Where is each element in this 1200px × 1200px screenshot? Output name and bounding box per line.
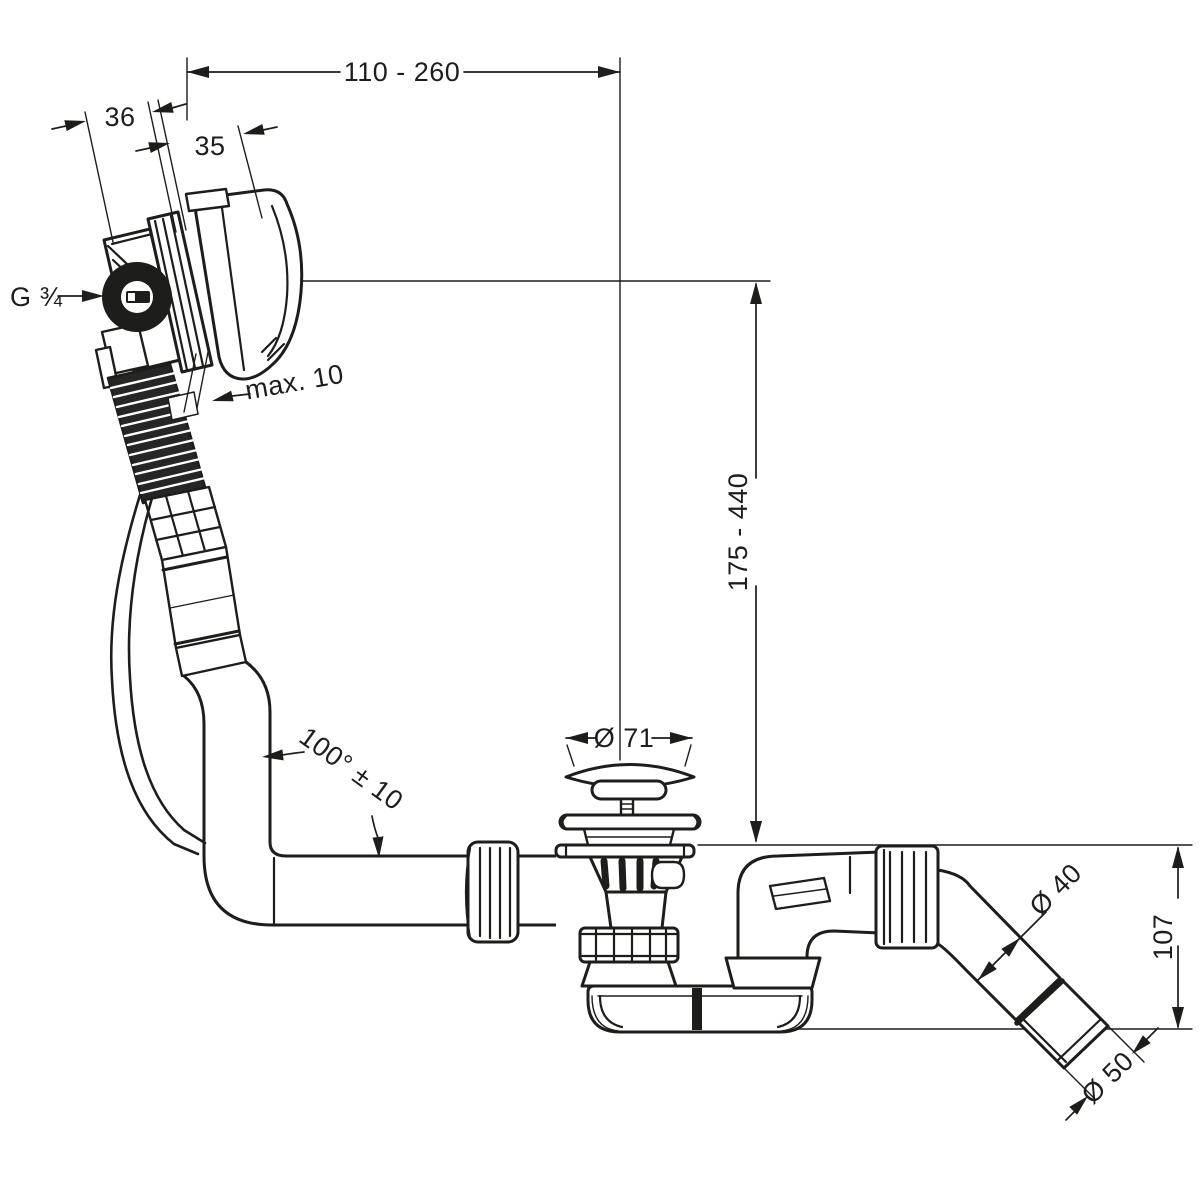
dim-height-range: 175 - 440 <box>723 282 762 843</box>
strainer-flange <box>556 845 694 857</box>
rosette-tab <box>186 189 229 211</box>
hose-union-nut <box>466 842 518 942</box>
dim-pipe-diameter-label: Ø 40 <box>1024 858 1088 922</box>
waste-body <box>556 845 696 986</box>
dim-plug-diameter: Ø 71 <box>566 723 692 766</box>
dim-outlet-height-label: 107 <box>1148 914 1178 961</box>
bath-waste-overflow-drawing: 110 - 260 36 35 G ¾ max. 10 175 - 4 <box>0 0 1200 1200</box>
rosette-housing <box>196 190 302 379</box>
bowl-seam <box>692 988 702 1030</box>
waste-hub <box>582 962 676 986</box>
dim-width-range: 110 - 260 <box>187 57 620 87</box>
thread-label: G ¾ <box>10 282 63 312</box>
thread-connection-ring <box>102 262 172 332</box>
dim-rosette-depth-label: 35 <box>194 131 225 161</box>
dim-thread: G ¾ <box>10 282 104 312</box>
outlet-union-nut <box>876 846 938 948</box>
technical-drawing-page: 110 - 260 36 35 G ¾ max. 10 175 - 4 <box>0 0 1200 1200</box>
corrugated-section <box>108 364 205 503</box>
dim-width-range-label: 110 - 260 <box>344 57 461 87</box>
popup-plug <box>560 765 700 846</box>
waste-union-nut <box>580 928 678 962</box>
dim-outlet-height: 107 <box>1148 846 1184 1029</box>
dim-height-range-label: 175 - 440 <box>723 473 753 592</box>
segmented-hose <box>145 487 246 676</box>
dim-hose-angle-label: 100° ± 10 <box>294 721 409 816</box>
trap-elbow <box>726 852 880 988</box>
overflow-filler-unit <box>96 189 302 676</box>
trap-bowl <box>588 986 812 1032</box>
dim-plug-diameter-label: Ø 71 <box>594 723 655 753</box>
dim-body-depth-label: 36 <box>104 102 135 132</box>
dim-hose-angle: 100° ± 10 <box>262 721 409 858</box>
